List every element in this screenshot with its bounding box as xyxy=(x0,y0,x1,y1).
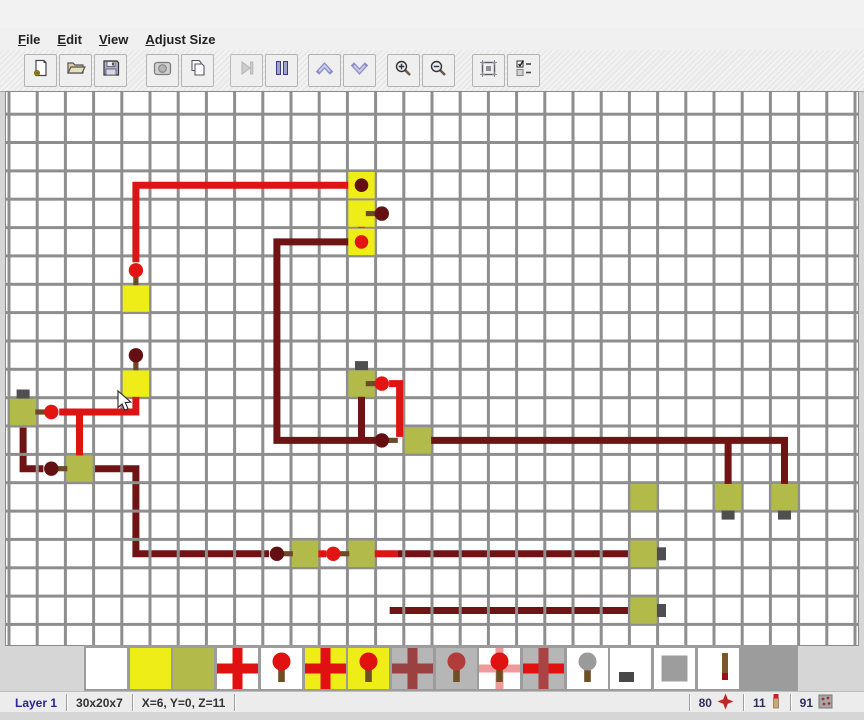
circuit-canvas[interactable] xyxy=(6,92,858,645)
palette-torch[interactable] xyxy=(261,648,302,689)
layer-indicator-label: Layer 1 xyxy=(15,696,57,710)
pause-button[interactable] xyxy=(265,54,298,87)
world-size-label: 30x20x7 xyxy=(76,696,123,710)
menu-item-file[interactable]: File xyxy=(18,32,40,47)
palette-torch-off[interactable] xyxy=(436,648,477,689)
menu-item-adjust-size[interactable]: Adjust Size xyxy=(145,32,215,47)
palette-olive-block[interactable] xyxy=(173,648,214,689)
palette-gray-block[interactable] xyxy=(654,648,695,689)
palette-torch-side[interactable] xyxy=(698,648,739,689)
palette-torch-unlit[interactable] xyxy=(567,648,608,689)
save-file-button[interactable] xyxy=(94,54,127,87)
chevron-up-icon xyxy=(315,60,334,82)
palette-wire-mixed[interactable] xyxy=(523,648,564,689)
toolbar xyxy=(0,50,864,92)
palette-wire-on-block[interactable] xyxy=(305,648,346,689)
options-button[interactable] xyxy=(507,54,540,87)
open-file-button[interactable] xyxy=(59,54,92,87)
component-palette xyxy=(84,645,798,691)
selection-button[interactable] xyxy=(472,54,505,87)
torch-count: 11 xyxy=(743,694,790,711)
circuit-grid[interactable] xyxy=(6,92,858,645)
palette-empty[interactable] xyxy=(86,648,127,689)
layer-up-button[interactable] xyxy=(308,54,341,87)
zoom-in-icon xyxy=(394,59,413,83)
export-image-icon xyxy=(153,60,172,82)
palette-yellow-block[interactable] xyxy=(130,648,171,689)
window-top-strip xyxy=(0,0,864,28)
block-count-value: 91 xyxy=(800,696,813,710)
palette-torch-on-block[interactable] xyxy=(348,648,389,689)
palette-wire[interactable] xyxy=(217,648,258,689)
cursor-position-label: X=6, Y=0, Z=11 xyxy=(142,696,226,710)
wire-count: 80 xyxy=(689,694,743,711)
step-button xyxy=(230,54,263,87)
pause-icon xyxy=(273,59,291,82)
options-list-icon xyxy=(515,59,533,82)
palette-button[interactable] xyxy=(610,648,651,689)
zoom-out-button[interactable] xyxy=(422,54,455,87)
zoom-out-icon xyxy=(429,59,448,83)
menu-bar: FileEditViewAdjust Size xyxy=(0,28,864,50)
torch-count-icon xyxy=(771,693,781,712)
chevron-down-icon xyxy=(350,60,369,82)
palette-wire-off[interactable] xyxy=(392,648,433,689)
block-count: 91 xyxy=(790,694,842,711)
palette-torch-on-wire[interactable] xyxy=(479,648,520,689)
wire-count-value: 80 xyxy=(699,696,712,710)
new-file-icon xyxy=(31,59,50,83)
copy-button[interactable] xyxy=(181,54,214,87)
block-count-icon xyxy=(818,694,833,712)
menu-item-edit[interactable]: Edit xyxy=(57,32,82,47)
open-folder-icon xyxy=(66,59,86,82)
menu-item-view[interactable]: View xyxy=(99,32,128,47)
copy-icon xyxy=(189,59,207,82)
cursor-position: X=6, Y=0, Z=11 xyxy=(133,694,236,711)
status-bar: Layer 130x20x7X=6, Y=0, Z=11801191 xyxy=(0,691,864,713)
export-image-button[interactable] xyxy=(146,54,179,87)
wire-count-icon xyxy=(717,693,734,713)
new-file-button[interactable] xyxy=(24,54,57,87)
torch-count-value: 11 xyxy=(753,696,766,710)
world-size: 30x20x7 xyxy=(67,694,133,711)
step-play-icon xyxy=(238,59,256,82)
layer-down-button[interactable] xyxy=(343,54,376,87)
save-floppy-icon xyxy=(102,59,120,82)
selection-frame-icon xyxy=(479,59,498,83)
window-bottom-strip xyxy=(0,712,864,720)
layer-indicator: Layer 1 xyxy=(6,694,67,711)
zoom-in-button[interactable] xyxy=(387,54,420,87)
